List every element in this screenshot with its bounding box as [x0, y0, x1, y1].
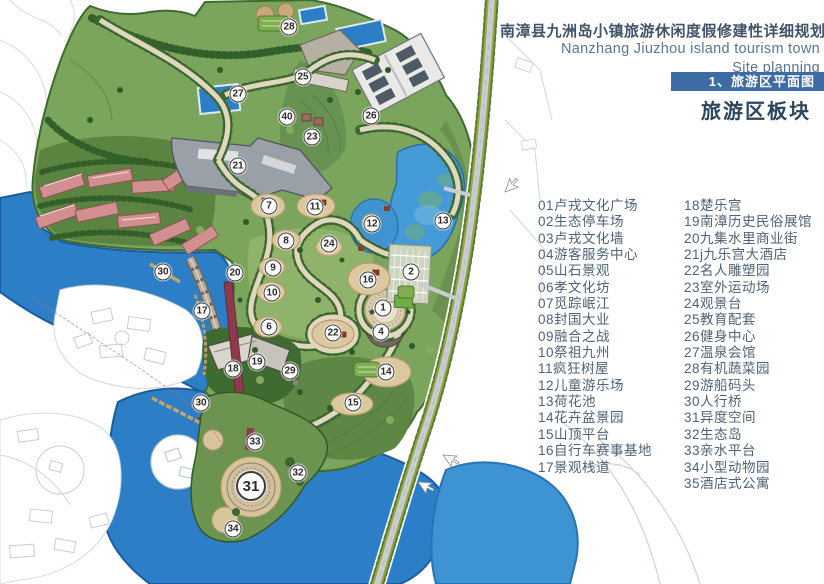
map-marker-1: 1 [375, 300, 392, 317]
legend-item-33: 33亲水平台 [684, 443, 812, 459]
map-marker-9: 9 [265, 260, 282, 277]
legend-item-34: 34小型动物园 [684, 460, 812, 476]
map-marker-32: 32 [290, 465, 307, 482]
map-marker-25: 25 [295, 69, 312, 86]
legend-item-08: 08封国大业 [538, 312, 652, 328]
map-marker-17: 17 [194, 303, 211, 320]
map-marker-40: 40 [279, 109, 296, 126]
legend-item-04: 04游客服务中心 [538, 247, 652, 263]
legend-column-2: 18楚乐宫19南漳历史民俗展馆20九集水里商业街21j九乐宫大酒店22名人雕塑园… [684, 198, 812, 492]
map-marker-20: 20 [227, 265, 244, 282]
legend-item-11: 11疯狂树屋 [538, 361, 652, 377]
map-marker-30: 30 [155, 264, 172, 281]
map-marker-14: 14 [378, 364, 395, 381]
legend-item-09: 09融合之战 [538, 329, 652, 345]
southeast-lake [431, 462, 577, 584]
legend-item-02: 02生态停车场 [538, 214, 652, 230]
legend-item-20: 20九集水里商业街 [684, 231, 812, 247]
map-marker-34: 34 [225, 521, 242, 538]
plan-title-en-1: Nanzhang Jiuzhou island tourism town [500, 41, 820, 57]
legend-item-07: 07觅踪岷江 [538, 296, 652, 312]
legend-item-22: 22名人雕塑园 [684, 263, 812, 279]
map-marker-23: 23 [304, 129, 321, 146]
legend-item-28: 28有机蔬菜园 [684, 361, 812, 377]
legend-item-05: 05山石景观 [538, 263, 652, 279]
map-marker-10: 10 [264, 285, 281, 302]
legend-column-1: 01卢戎文化广场02生态停车场03卢戎文化墙04游客服务中心05山石景观06孝文… [538, 198, 652, 476]
map-marker-24: 24 [321, 236, 338, 253]
legend-item-10: 10祭祖九州 [538, 345, 652, 361]
map-marker-30: 30 [193, 395, 210, 412]
legend-item-18: 18楚乐宫 [684, 198, 812, 214]
map-marker-6: 6 [261, 319, 278, 336]
legend-item-03: 03卢戎文化墙 [538, 231, 652, 247]
screenshot-root: 2825274023262171112132824920101614617221… [0, 0, 824, 584]
plan-title-zh: 南漳县九洲岛小镇旅游休闲度假修建性详细规划 [500, 20, 820, 41]
legend-item-15: 15山顶平台 [538, 427, 652, 443]
map-marker-2: 2 [403, 264, 420, 281]
map-marker-21: 21 [230, 158, 247, 175]
map-marker-19: 19 [249, 354, 266, 371]
legend-item-16: 16自行车赛事基地 [538, 443, 652, 459]
map-marker-29: 29 [282, 363, 299, 380]
map-marker-8: 8 [278, 233, 295, 250]
legend-item-21: 21j九乐宫大酒店 [684, 247, 812, 263]
legend-item-24: 24观景台 [684, 296, 812, 312]
legend-item-35: 35酒店式公寓 [684, 476, 812, 492]
legend-item-32: 32生态岛 [684, 427, 812, 443]
map-marker-16: 16 [360, 272, 377, 289]
map-marker-11: 11 [307, 199, 324, 216]
map-marker-7: 7 [261, 198, 278, 215]
map-marker-12: 12 [364, 216, 381, 233]
map-marker-28: 28 [281, 19, 298, 36]
section-heading: 旅游区板块 [701, 95, 811, 124]
map-marker-15: 15 [345, 395, 362, 412]
map-marker-18: 18 [225, 361, 242, 378]
map-marker-4: 4 [373, 324, 390, 341]
legend-item-25: 25教育配套 [684, 312, 812, 328]
map-marker-26: 26 [363, 108, 380, 125]
legend-item-27: 27温泉会馆 [684, 345, 812, 361]
map-marker-27: 27 [230, 86, 247, 103]
legend-item-13: 13荷花池 [538, 394, 652, 410]
legend-item-29: 29游船码头 [684, 378, 812, 394]
legend-item-06: 06孝文化坊 [538, 280, 652, 296]
legend-item-19: 19南漳历史民俗展馆 [684, 214, 812, 230]
section-tab: 1、旅游区平面图 [671, 72, 824, 91]
legend-item-26: 26健身中心 [684, 329, 812, 345]
legend-item-23: 23室外运动场 [684, 280, 812, 296]
legend-item-31: 31异度空间 [684, 410, 812, 426]
map-marker-22: 22 [325, 325, 342, 342]
legend-item-30: 30人行桥 [684, 394, 812, 410]
legend-item-17: 17景观栈道 [538, 460, 652, 476]
legend-item-01: 01卢戎文化广场 [538, 198, 652, 214]
map-marker-13: 13 [435, 213, 452, 230]
legend-item-12: 12儿童游乐场 [538, 378, 652, 394]
legend-item-14: 14花卉盆景园 [538, 410, 652, 426]
map-marker-31: 31 [236, 471, 266, 501]
map-marker-33: 33 [247, 434, 264, 451]
